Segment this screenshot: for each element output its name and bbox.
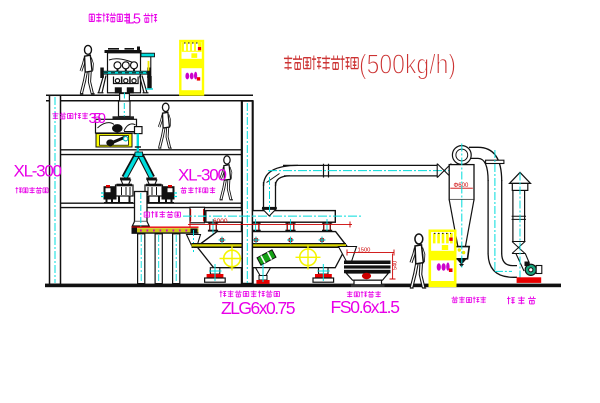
svg-text:XL-300: XL-300 xyxy=(14,162,63,181)
svg-text:XL-300: XL-300 xyxy=(178,166,227,185)
svg-text:FS0.6x1.5: FS0.6x1.5 xyxy=(331,297,401,317)
svg-text:350: 350 xyxy=(89,110,107,127)
svg-text:1500: 1500 xyxy=(358,248,371,254)
svg-text:540: 540 xyxy=(393,261,399,270)
svg-text:(500kg/h): (500kg/h) xyxy=(359,49,456,80)
svg-text:6000: 6000 xyxy=(213,218,228,225)
svg-text:1.5: 1.5 xyxy=(125,12,141,28)
svg-text:ZLG6x0.75: ZLG6x0.75 xyxy=(221,298,296,318)
